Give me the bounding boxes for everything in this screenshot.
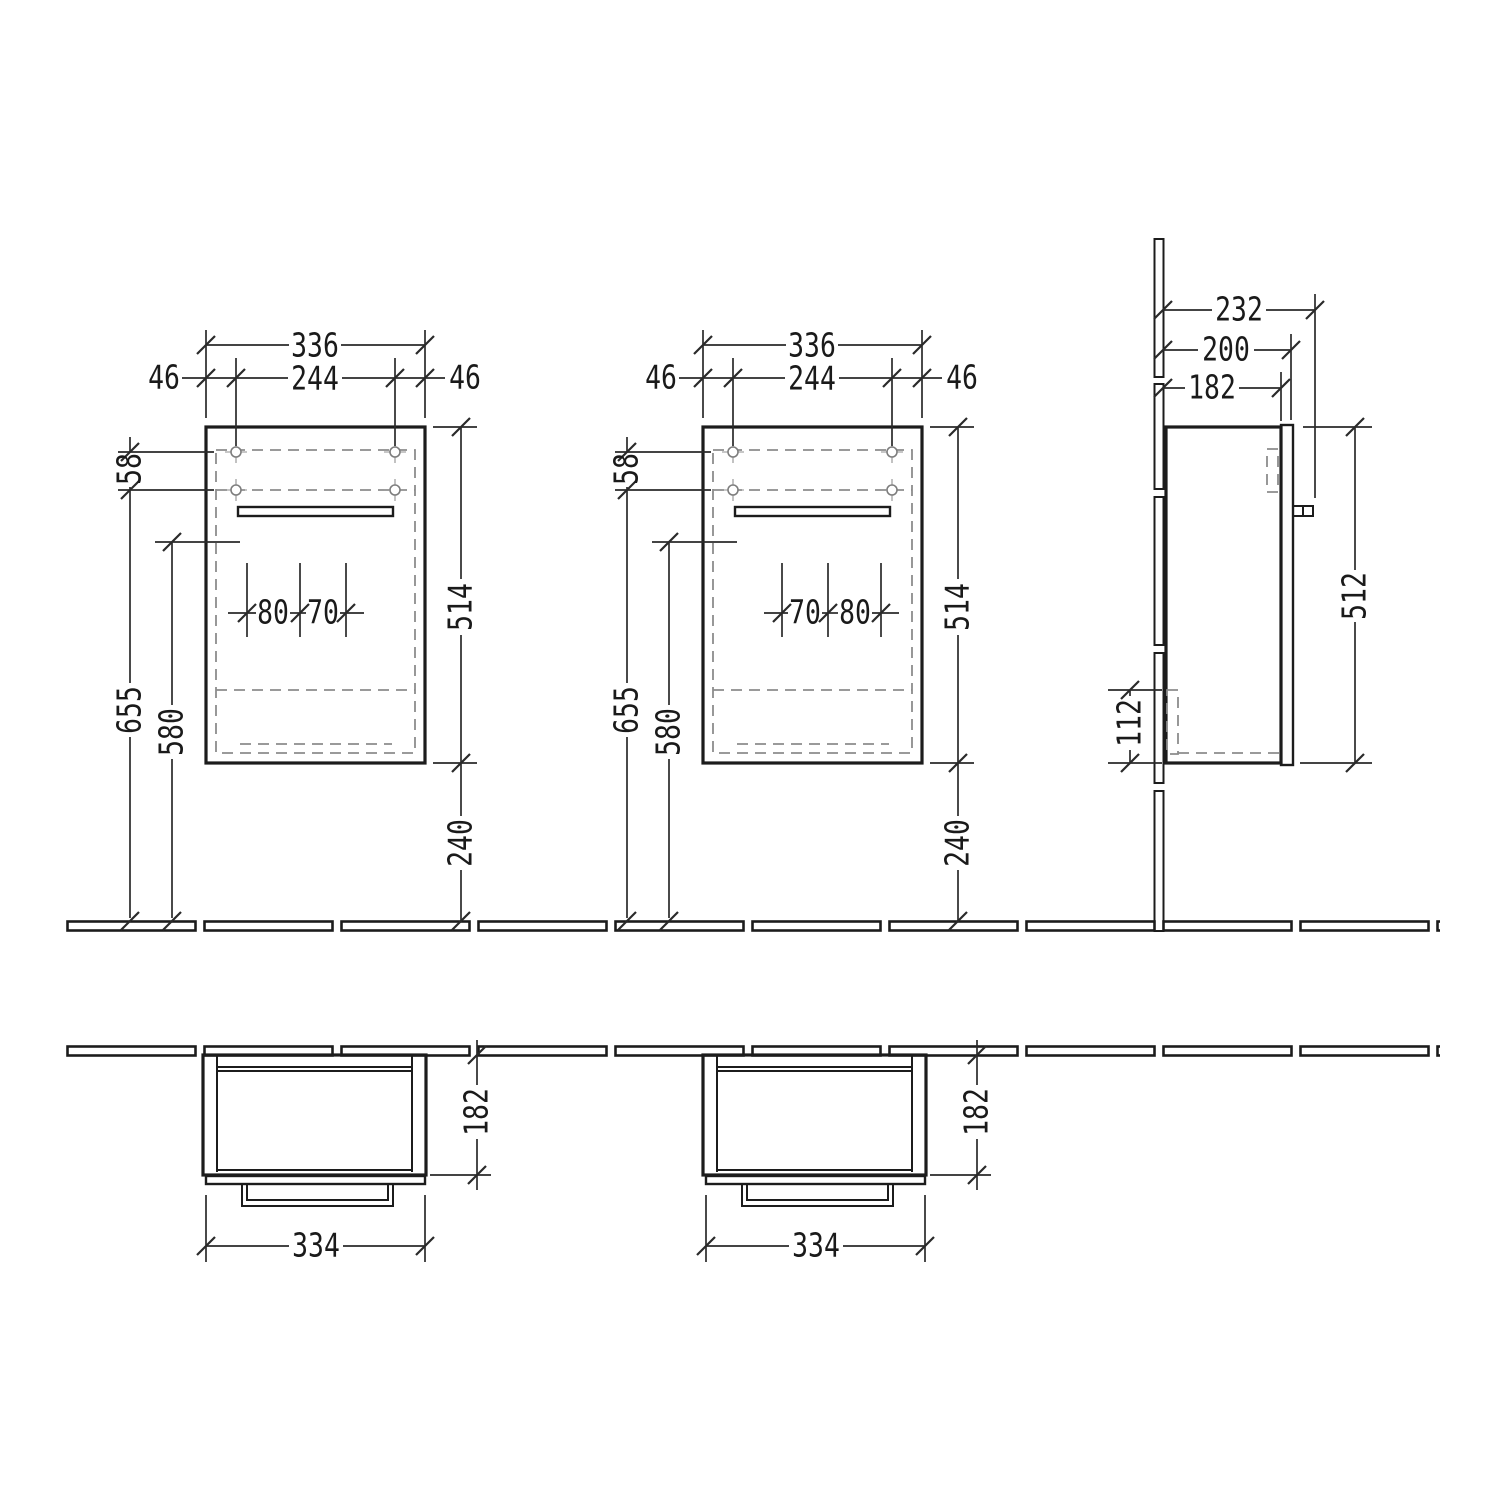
dim-edge-offset-left-label: 46 <box>645 359 677 398</box>
dim-plan-depth-label: 182 <box>458 1088 497 1136</box>
dim-fixing-height-label: 655 <box>111 686 150 734</box>
dim-cutout-right-label: 70 <box>307 594 339 633</box>
floor-line <box>60 920 1440 932</box>
technical-drawing-canvas: 336 244 46 46 58 655 580 514 240 80 70 3… <box>0 0 1500 1500</box>
dim-edge-offset-right-label: 46 <box>449 359 481 398</box>
dim-body-height-label: 514 <box>939 583 978 631</box>
dimension-drawing: 336 244 46 46 58 655 580 514 240 80 70 3… <box>0 0 1500 1500</box>
dim-reference-height-label: 580 <box>650 708 689 756</box>
dim-plan-width-label: 334 <box>792 1227 840 1266</box>
front-view-center-cutout-dim <box>764 563 899 637</box>
dim-cutout-left-label: 70 <box>789 594 821 633</box>
front-view-left: 336 244 46 46 58 655 580 514 240 80 70 <box>111 327 481 930</box>
side-view-handle <box>1293 506 1313 516</box>
side-view-wall <box>1155 239 1164 931</box>
front-view-center: 336 244 46 46 58 655 580 514 240 70 80 <box>608 327 978 930</box>
dim-door-depth-label: 200 <box>1202 331 1250 370</box>
side-view-drain-hidden <box>1167 690 1280 754</box>
front-view-left-geometry <box>118 330 477 930</box>
dim-cutout-left-label: 80 <box>257 594 289 633</box>
plan-view-right: 182 334 <box>697 1040 996 1265</box>
front-view-left-cutout-dim <box>228 563 364 637</box>
plan-view-right-geometry <box>697 1040 991 1262</box>
dim-edge-offset-right-label: 46 <box>946 359 978 398</box>
dim-cutout-right-label: 80 <box>839 594 871 633</box>
plan-view-left-geometry <box>197 1040 491 1262</box>
dim-fixing-height-label: 655 <box>608 686 647 734</box>
dim-floor-clearance-label: 240 <box>939 819 978 867</box>
dim-floor-clearance-label: 240 <box>442 819 481 867</box>
dim-total-depth-label: 232 <box>1215 291 1263 330</box>
side-view-door <box>1281 425 1293 765</box>
plan-view-left: 182 334 <box>197 1040 496 1265</box>
side-view: 232 200 182 512 112 <box>1108 239 1374 931</box>
dim-edge-offset-left-label: 46 <box>148 359 180 398</box>
dim-plan-depth-label: 182 <box>958 1088 997 1136</box>
dim-hole-row-gap-label: 58 <box>111 453 150 485</box>
dim-body-height-label: 514 <box>442 583 481 631</box>
side-view-carcass <box>1166 427 1281 763</box>
dim-body-depth-label: 182 <box>1188 369 1236 408</box>
side-view-mounting-rail <box>1267 449 1278 492</box>
dim-plan-width-label: 334 <box>292 1227 340 1266</box>
dim-door-height-label: 512 <box>1336 572 1375 620</box>
dim-bottom-zone-label: 112 <box>1111 699 1150 747</box>
dim-reference-height-label: 580 <box>153 708 192 756</box>
dim-hole-row-gap-label: 58 <box>608 453 647 485</box>
dim-hole-spacing-label: 244 <box>291 360 339 399</box>
dim-hole-spacing-label: 244 <box>788 360 836 399</box>
